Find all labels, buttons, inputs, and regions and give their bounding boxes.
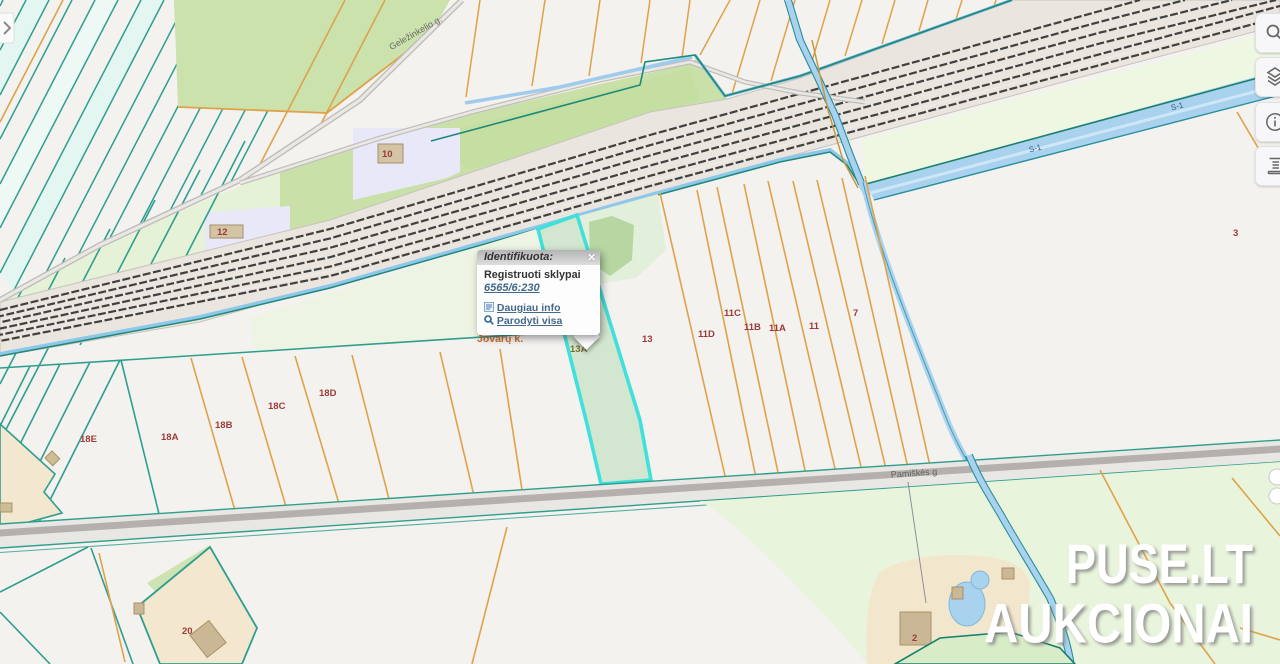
svg-text:AUKCIONAI: AUKCIONAI xyxy=(984,592,1253,655)
svg-text:PUSE.LT: PUSE.LT xyxy=(1066,532,1253,595)
